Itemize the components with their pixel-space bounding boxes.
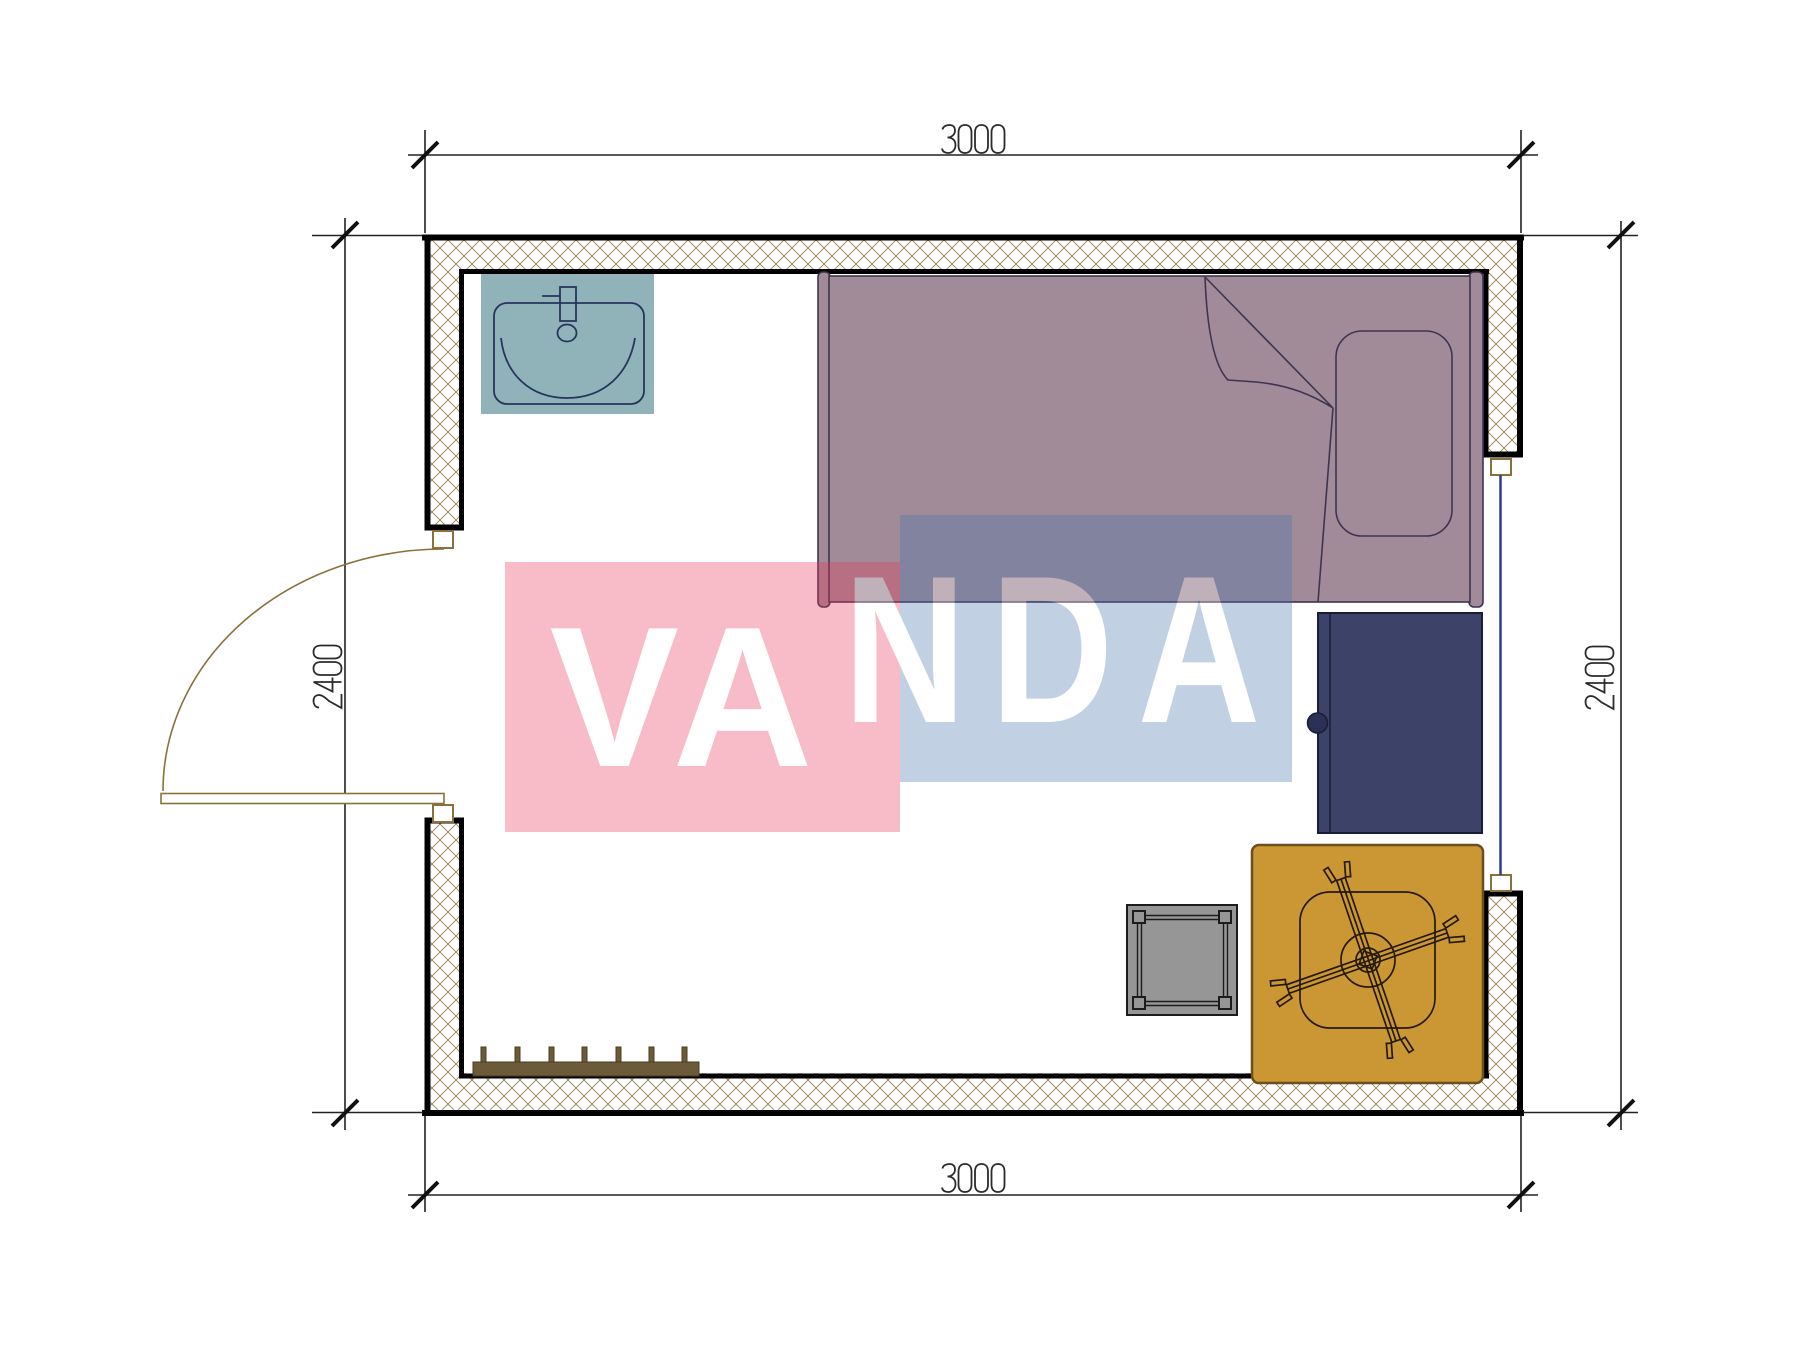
- svg-text:VA: VA: [550, 585, 821, 808]
- svg-text:NDA: NDA: [843, 533, 1284, 767]
